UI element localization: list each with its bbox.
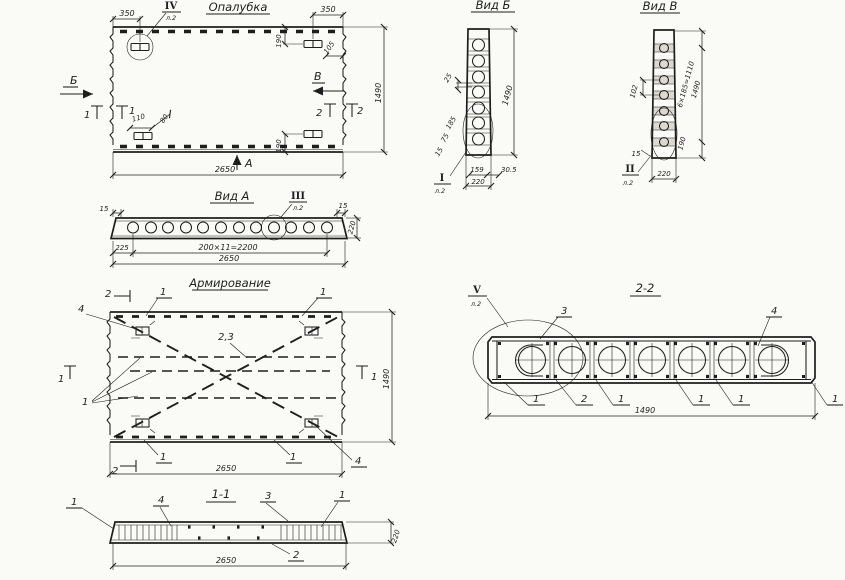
detail-iii-leader [281, 204, 292, 217]
detail-i-numeral: I [440, 173, 445, 184]
view-arrow-b-label: Б [70, 74, 78, 87]
dim-15-right: 15 [339, 202, 348, 210]
pos-2-label: 2 [581, 394, 587, 405]
pos-4-label: 4 [771, 306, 777, 317]
lifting-anchor-top-left [131, 44, 149, 51]
pos-2-3-leader [230, 343, 247, 358]
hole [251, 222, 262, 233]
dim-25: 25 [443, 72, 455, 84]
detail-ii-numeral: II [625, 164, 635, 175]
detail-iii-sheet: л.2 [292, 204, 303, 212]
section-mark-1-left-outer [91, 106, 103, 119]
formwork-title: Опалубка [209, 0, 268, 14]
section-2-2: 2-2 V л.2 3 4 1 2 1 1 1 1 1490 [468, 281, 843, 420]
pos-4-label: 4 [78, 304, 84, 315]
detail-ii-sheet: л.2 [622, 179, 633, 187]
detail-v-ellipse [473, 320, 583, 396]
formwork-plan-view: Опалубка IV л.2 350 350 190 105 110 80 1… [60, 0, 388, 179]
dim-190-top: 190 [275, 34, 283, 48]
hole [473, 117, 485, 129]
hole [269, 222, 280, 233]
hole [304, 222, 315, 233]
corner-anchor-bottom-right [299, 416, 323, 433]
view-arrow-v-label: В [314, 70, 322, 83]
hole [216, 222, 227, 233]
hole [473, 86, 485, 98]
section-1-label2: 1 [129, 106, 135, 117]
detail-v-numeral: V [472, 285, 481, 296]
dim-2650: 2650 [216, 556, 236, 565]
pos-4-leader [86, 314, 136, 329]
section-1-label: 1 [84, 110, 90, 121]
detail-i-ellipse [463, 104, 493, 158]
pos-4-label: 4 [158, 495, 164, 506]
hole [128, 222, 139, 233]
dim-15: 15 [434, 146, 446, 158]
view-b-title: Вид Б [476, 0, 511, 12]
section-1-1-title: 1-1 [212, 487, 231, 501]
pos-1-label: 1 [160, 287, 166, 298]
corner-anchor-top-left [131, 321, 155, 338]
pos-1-label: 1 [339, 490, 345, 501]
panel-right-keyed-edge [342, 312, 345, 435]
dim-80: 80 [159, 112, 171, 124]
section-1-label: 1 [371, 372, 377, 383]
view-a-title: Вид А [215, 189, 250, 203]
dim-15: 15 [632, 150, 641, 158]
hole [322, 222, 333, 233]
section-mark-1-right [356, 366, 368, 379]
hole [473, 133, 485, 145]
pos-1-leaders [92, 358, 152, 403]
dim-pitch: 200×11=2200 [198, 243, 257, 252]
reinforcement-title: Армирование [188, 276, 271, 290]
dim-350-right: 350 [320, 5, 335, 14]
hole [234, 222, 245, 233]
dim-350-left: 350 [119, 9, 134, 18]
lifting-anchor-bottom-left [134, 133, 152, 140]
corner-anchor-top-right [299, 321, 323, 338]
dim-102: 102 [628, 83, 639, 99]
hole [146, 222, 157, 233]
dim-2650: 2650 [216, 464, 236, 473]
dim-305: 30.5 [501, 166, 517, 174]
dim-190-bottom: 190 [275, 139, 283, 153]
detail-i-sheet: л.2 [434, 187, 445, 195]
section-2-label: 2 [316, 108, 322, 119]
pos-2-3-label: 2,3 [218, 332, 234, 343]
view-v-title: Вид В [643, 0, 678, 13]
hole [286, 222, 297, 233]
dim-220: 220 [346, 219, 357, 235]
detail-iv-numeral: IV [165, 1, 178, 12]
right-stirrup-cluster [281, 525, 341, 540]
dim-1490: 1490 [635, 406, 655, 415]
dim-159: 159 [470, 166, 484, 174]
detail-v-leader [487, 298, 508, 327]
panel-right-keyed-edge [343, 27, 346, 145]
dim-2650: 2650 [215, 165, 235, 174]
section-mark-2-bottom [120, 460, 136, 472]
hole [163, 222, 174, 233]
dim-2650: 2650 [219, 254, 239, 263]
view-arrow-a-label: А [244, 157, 253, 170]
pos-1-label: 1 [533, 394, 539, 405]
panel-left-keyed-edge [110, 27, 113, 145]
reinforcement-plan-view: Армирование 4 1 1 2,3 1 1 1 4 2 2 1 1 26… [58, 276, 396, 478]
view-a-elevation: Вид А III л.2 15 15 225 200×11=2200 2650… [100, 189, 361, 268]
section-2-label2: 2 [357, 106, 363, 117]
pos-3-label: 3 [265, 491, 271, 502]
pos-2-label: 2 [293, 550, 299, 561]
pos-1-label: 1 [82, 397, 88, 408]
drawing-canvas: Опалубка IV л.2 350 350 190 105 110 80 1… [0, 0, 845, 580]
pos-1-label: 1 [160, 452, 166, 463]
detail-iii-numeral: III [291, 191, 305, 202]
dim-225: 225 [115, 244, 129, 252]
dim-75: 75 [440, 132, 452, 144]
dim-190: 190 [676, 135, 687, 151]
dim-220: 220 [390, 528, 402, 544]
dim-220: 220 [657, 170, 671, 178]
pos-1-label: 1 [698, 394, 704, 405]
dim-15-left: 15 [100, 205, 109, 213]
hole [473, 71, 485, 83]
dim-105: 105 [322, 40, 337, 56]
detail-i-leader [450, 152, 466, 176]
dim-15-tick [641, 150, 650, 156]
dim-1490: 1490 [501, 84, 515, 106]
section-mark-1-left-inner [116, 106, 128, 119]
view-b-outline [466, 29, 491, 155]
section-1-1: 1-1 1 4 3 1 2 2650 220 [66, 487, 402, 570]
pos-3-label: 3 [561, 306, 567, 317]
drawing-sheet: Опалубка IV л.2 350 350 190 105 110 80 1… [0, 0, 845, 580]
section-2-label: 2 [112, 466, 118, 477]
dim-220: 220 [471, 178, 485, 186]
view-b-end-view: Вид Б I л.2 25 1490 185 75 15 159 30.5 2… [434, 0, 518, 195]
pos-1-label: 1 [290, 452, 296, 463]
lifting-anchor-top-right [304, 41, 322, 48]
section-2-label: 2 [105, 289, 111, 300]
detail-iv-sheet: л.2 [165, 14, 176, 22]
hole [473, 39, 485, 51]
dim-1490: 1490 [690, 79, 702, 99]
corner-anchor-bottom-left [131, 416, 155, 433]
view-v-end-view: Вид В II л.2 102 6×185=1110 1490 190 15 … [622, 0, 706, 187]
pos-1-label: 1 [832, 394, 838, 405]
pos-1-label: 1 [320, 287, 326, 298]
dim-185: 185 [444, 115, 458, 131]
left-stirrup-cluster [119, 525, 177, 540]
section-2-2-title: 2-2 [636, 281, 655, 295]
dim-1490: 1490 [382, 369, 391, 389]
section-mark-1-left [64, 366, 76, 379]
pos-4-label: 4 [355, 456, 361, 467]
panel-left-keyed-edge [107, 312, 110, 435]
hole [473, 55, 485, 67]
detail-v-sheet: л.2 [470, 300, 481, 308]
hole [198, 222, 209, 233]
lifting-anchor-bottom-right [304, 131, 322, 138]
pos-1-label: 1 [71, 497, 77, 508]
hole-centerlines [515, 343, 789, 377]
section-mark-2-top [114, 290, 130, 302]
hole [181, 222, 192, 233]
pos-1-label: 1 [618, 394, 624, 405]
dim-1490: 1490 [374, 83, 383, 103]
section-1-label: 1 [58, 374, 64, 385]
pos-1-label: 1 [738, 394, 744, 405]
section-mark-2-right-inner [324, 104, 336, 117]
